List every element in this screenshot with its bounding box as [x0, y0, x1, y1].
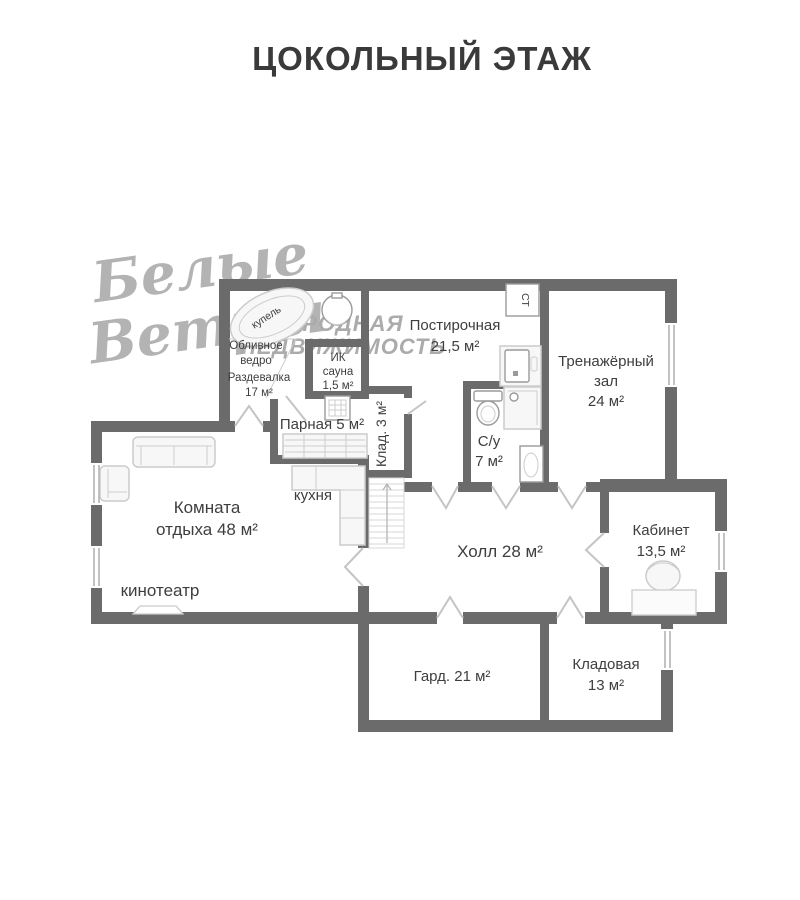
label-gym-area: 24 м² [588, 393, 624, 410]
door-small-closet [408, 401, 426, 414]
window-office [713, 531, 729, 572]
label-kitchen: кухня [294, 487, 332, 504]
label-bathroom-name: С/у [478, 433, 501, 450]
label-storage-name: Кладовая [572, 656, 639, 673]
window-lounge-2 [89, 546, 104, 588]
label-hall: Холл 28 м² [457, 542, 543, 561]
door-wardrobe [437, 597, 463, 618]
window-storage [659, 629, 675, 670]
sink-icon [520, 446, 543, 482]
door-gym [558, 486, 586, 508]
door-dressing [235, 406, 263, 426]
label-lounge-line2: отдыха 48 м² [156, 520, 258, 539]
label-ir-sauna-line2: сауна [323, 366, 354, 378]
sofa-icon [133, 437, 215, 467]
label-lounge-line1: Комната [174, 498, 241, 517]
toilet-icon [474, 391, 502, 425]
window-gym [663, 323, 679, 387]
label-laundry-name: Постирочная [410, 317, 501, 334]
floor-plan-page: ЦОКОЛЬНЫЙ ЭТАЖ Белые Ветры ЗАГОРОДНАЯ НЕ… [0, 0, 800, 900]
label-steam-room: Парная 5 м² [280, 416, 364, 433]
desk-icon [632, 561, 696, 615]
door-bathroom [492, 486, 520, 508]
stairs-icon [369, 478, 404, 548]
shower-icon [504, 387, 541, 429]
door-office [586, 533, 604, 567]
label-cinema: кинотеатр [121, 581, 200, 600]
sauna-benches [283, 434, 367, 458]
label-washer: СТ [519, 293, 531, 307]
label-ir-sauna-line1: ИК [331, 352, 346, 364]
door-storage [557, 597, 583, 618]
door-lounge-hall [345, 548, 363, 586]
dousing-bucket-icon [322, 293, 352, 325]
label-office-name: Кабинет [632, 522, 689, 539]
label-gym-name2: зал [594, 373, 618, 390]
label-laundry-area: 21,5 м² [431, 338, 480, 355]
label-dressing-name: Раздевалка [228, 372, 291, 384]
dryer-icon [500, 346, 541, 386]
label-wardrobe: Гард. 21 м² [414, 668, 491, 685]
label-office-area: 13,5 м² [637, 543, 686, 560]
label-dressing-area: 17 м² [245, 387, 273, 399]
label-ir-sauna-area: 1,5 м² [323, 380, 354, 392]
label-bucket-line2: ведро [240, 355, 272, 367]
floor-plan: Белые Ветры ЗАГОРОДНАЯ НЕДВИЖИМОСТЬ [0, 0, 800, 900]
kitchen-counter [292, 466, 365, 545]
label-gym-name1: Тренажёрный [558, 353, 654, 370]
label-small-closet: Клад. 3 м² [373, 401, 389, 467]
armchair-icon [100, 466, 129, 501]
label-bathroom-area: 7 м² [475, 453, 503, 470]
label-bucket-line1: Обливное [229, 340, 282, 352]
label-storage-area: 13 м² [588, 677, 624, 694]
door-corridor [432, 486, 458, 508]
window-cinema-sill [133, 606, 183, 614]
